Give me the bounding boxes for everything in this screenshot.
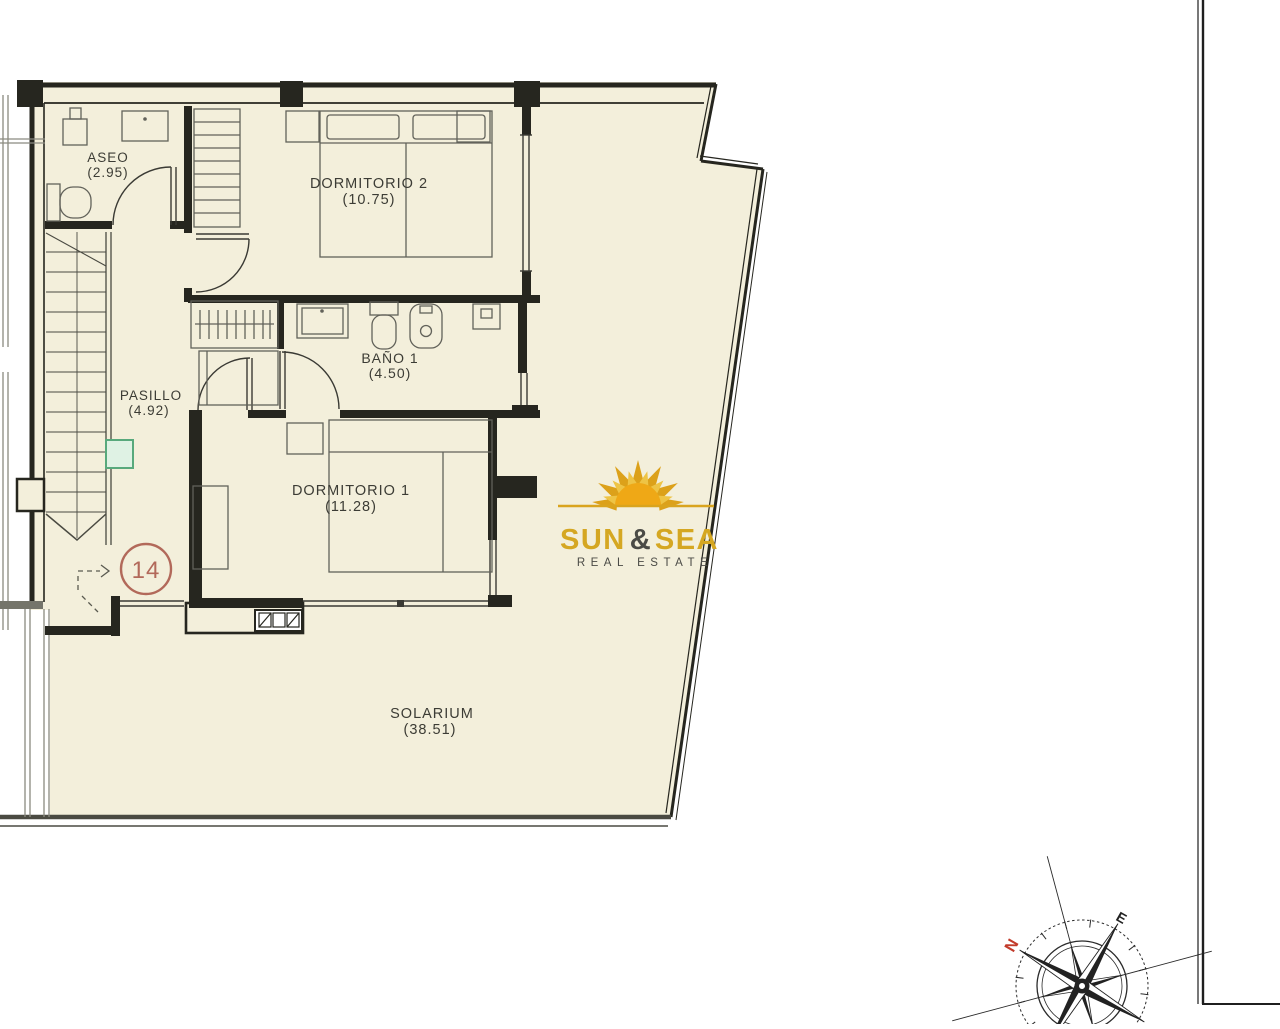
ac-unit-icon [255,610,302,631]
room-label-pasillo: PASILLO [120,388,182,403]
logo-tagline: REAL ESTATE [577,557,713,569]
room-label-aseo: ASEO [87,150,129,165]
page-border [1198,0,1280,1004]
logo-word-sea: SEA [655,524,719,556]
room-label-bano1: BAÑO 1 [361,350,418,366]
room-area-dormitorio1: (11.28) [325,499,377,515]
unit-number: 14 [132,557,161,584]
room-label-solarium: SOLARIUM [390,706,474,722]
compass-east-label: E [1113,908,1129,927]
room-area-dormitorio2: (10.75) [343,192,396,208]
compass-north-label: N [1002,936,1023,955]
logo-ampersand: & [630,524,652,556]
floor-plan-drawing: 14 [0,0,1280,1024]
room-area-aseo: (2.95) [87,165,128,180]
room-label-dormitorio2: DORMITORIO 2 [310,176,428,192]
room-area-pasillo: (4.92) [128,403,169,418]
logo-word-sun: SUN [560,524,626,556]
room-label-dormitorio1: DORMITORIO 1 [292,483,410,499]
room-area-solarium: (38.51) [404,722,457,738]
compass-rose-icon: N E [952,856,1212,1024]
room-area-bano1: (4.50) [369,365,412,381]
floor-plan-sheet: 14 [0,0,1280,1024]
stair-landing-marker [106,440,133,468]
terrace-south-edge [0,817,671,826]
logo-wordmark: SUN & SEA [560,524,719,556]
